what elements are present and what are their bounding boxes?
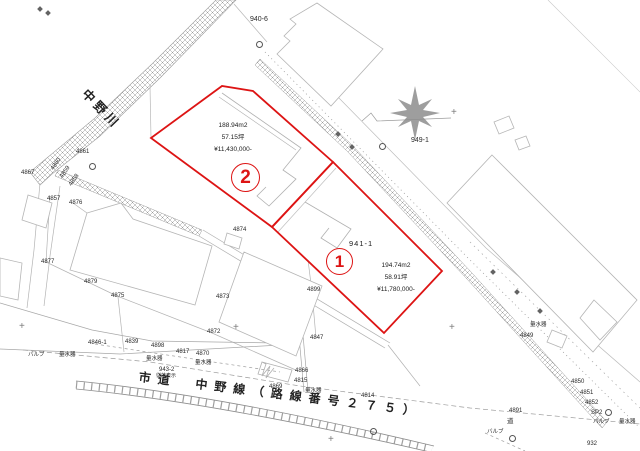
point-label: 量水器	[530, 323, 547, 329]
cross-marker-icon: +	[451, 108, 457, 118]
point-label: 4846-1	[88, 340, 107, 346]
circle-marker-icon	[89, 163, 96, 170]
point-label: 4874	[233, 227, 246, 233]
point-label: 4899	[307, 287, 320, 293]
point-label: 4877	[41, 259, 54, 265]
point-label: 4850	[571, 379, 584, 385]
circle-marker-icon	[379, 143, 386, 150]
point-label: 4817	[176, 349, 189, 355]
cadastral-map: 中野川 市道 中野線（路線番号２７５） 2 1 941-1 188.94m2 5…	[0, 0, 640, 451]
point-label: 4873	[216, 294, 229, 300]
parcel-1-number-badge: 1	[326, 248, 353, 275]
point-label: 4849	[520, 333, 533, 339]
point-label: 4875	[111, 293, 124, 299]
circle-marker-icon	[509, 435, 516, 442]
point-label: 4879	[84, 279, 97, 285]
cross-marker-icon: +	[328, 435, 334, 445]
point-label: 4857	[47, 196, 60, 202]
point-label: 4867	[21, 170, 34, 176]
point-label: 4869	[269, 384, 282, 390]
parcel-2-number-badge: 2	[231, 163, 260, 192]
point-label: 量水器	[195, 361, 212, 367]
circle-marker-icon	[256, 41, 263, 48]
point-label: 4814	[361, 393, 374, 399]
parcel-2-tsubo: 57.15坪	[192, 132, 274, 144]
point-label: バルブ	[593, 420, 610, 426]
parcel-1-area: 194.74m2	[352, 260, 440, 272]
point-label: 949-1	[411, 137, 429, 144]
point-label: 4851	[580, 390, 593, 396]
point-label: 4839	[125, 339, 138, 345]
point-label: 4872	[207, 329, 220, 335]
point-label: 量水器	[146, 357, 163, 363]
buildings	[0, 3, 637, 356]
north-star-icon	[390, 86, 440, 140]
point-label: 4861	[76, 149, 89, 155]
cross-marker-icon: +	[233, 323, 239, 333]
point-label: 4891	[509, 408, 522, 414]
parcel-1-info: 194.74m2 58.91坪 ¥11,780,000-	[352, 260, 440, 296]
parcel-2-info: 188.94m2 57.15坪 ¥11,430,000-	[192, 120, 274, 156]
point-label: 932	[587, 441, 597, 447]
point-label: 4852	[585, 400, 598, 406]
point-label: バルブ	[28, 353, 45, 359]
point-label: 4898	[151, 343, 164, 349]
point-label: 4815	[294, 378, 307, 384]
point-label: バルブ	[487, 430, 504, 436]
parcel-1-lot-number: 941-1	[349, 239, 373, 248]
cross-marker-icon: +	[449, 323, 455, 333]
point-label: 量水器	[305, 389, 322, 395]
parcel-2-price: ¥11,430,000-	[192, 144, 274, 156]
point-label: SP2	[591, 410, 602, 416]
map-linework	[0, 0, 640, 451]
point-label: 道	[507, 419, 514, 426]
circle-marker-icon	[370, 428, 377, 435]
point-label: 940-6	[250, 16, 268, 23]
point-label: 従前表示	[156, 374, 176, 379]
circle-marker-icon	[605, 409, 612, 416]
parcel-2-area: 188.94m2	[192, 120, 274, 132]
point-label: 4847	[310, 335, 323, 341]
river-band	[30, 0, 236, 185]
point-label: 4866	[295, 368, 308, 374]
point-label: 4870	[196, 351, 209, 357]
cross-marker-icon: +	[19, 322, 25, 332]
parcel-1-price: ¥11,780,000-	[352, 284, 440, 296]
point-label: 4876	[69, 200, 82, 206]
parcel-1-tsubo: 58.91坪	[352, 272, 440, 284]
point-label: 量水器	[619, 420, 636, 426]
point-label: 量水器	[59, 353, 76, 359]
